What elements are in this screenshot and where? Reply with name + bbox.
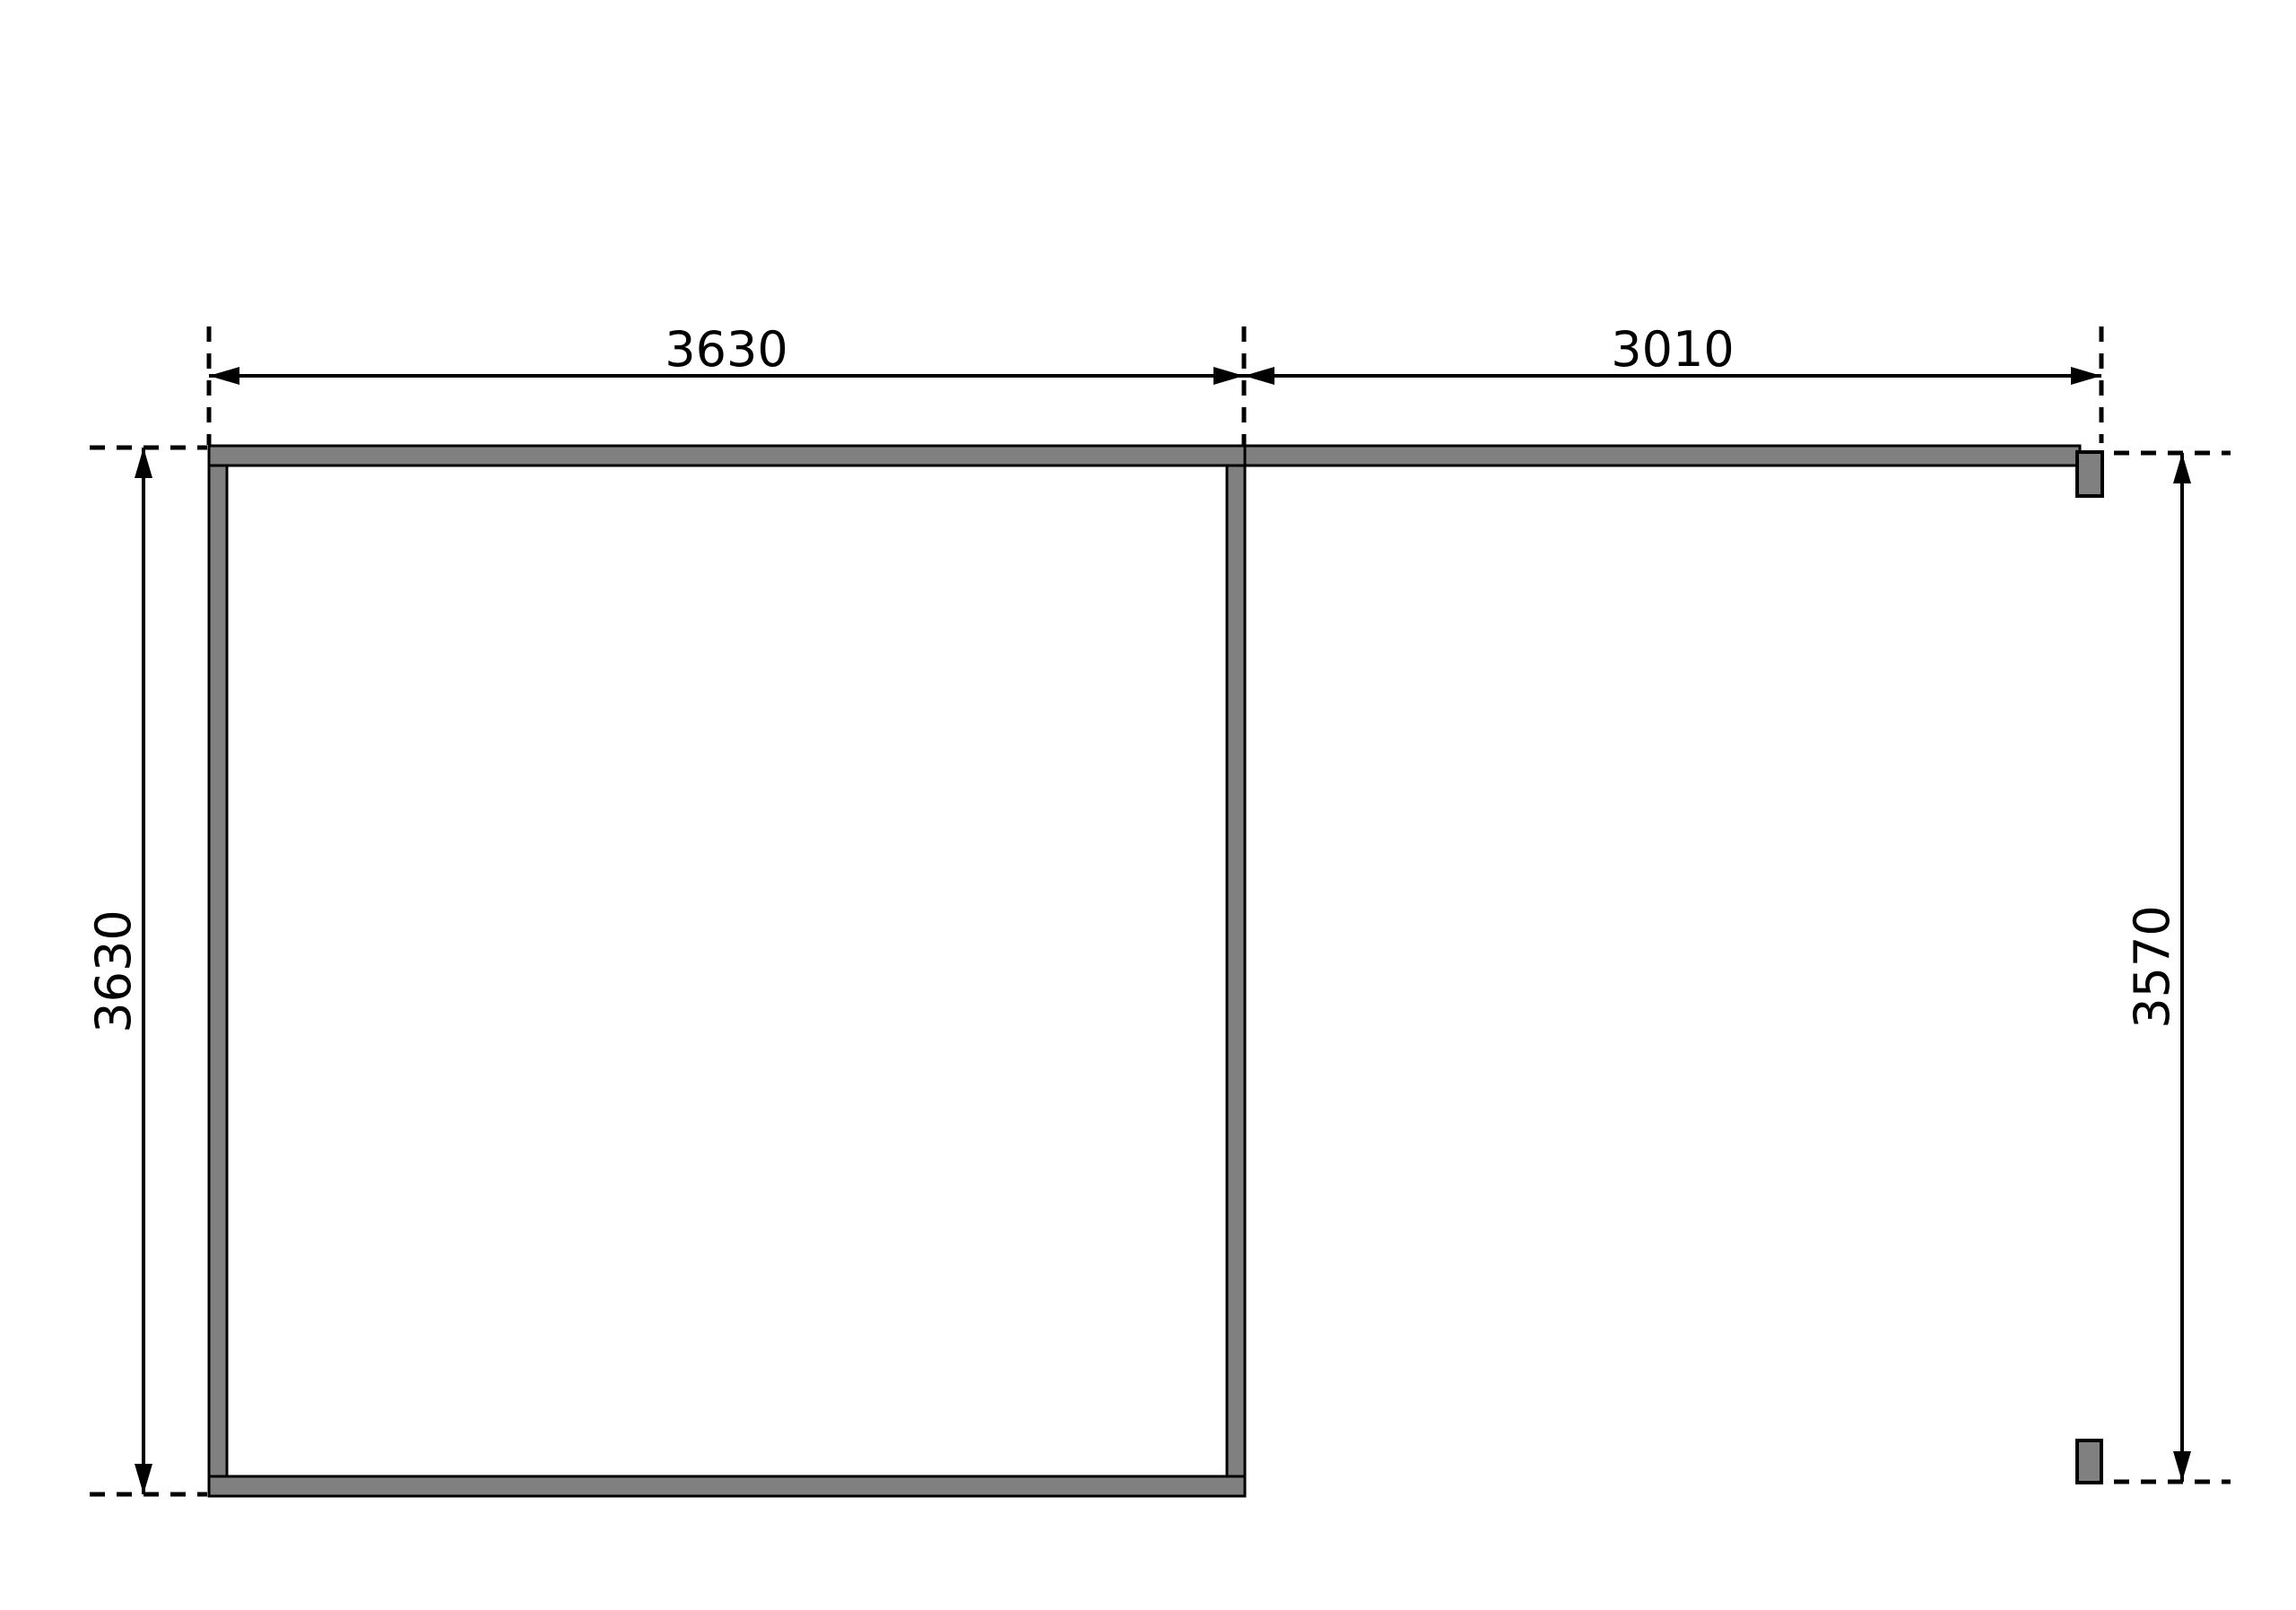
dimension-top-right-width: 3010 xyxy=(1244,321,2101,385)
dimension-top-left-width: 3630 xyxy=(209,321,1244,385)
extension-structure xyxy=(1245,446,2102,1483)
arrowhead-up-icon xyxy=(2173,453,2191,483)
room-right-wall xyxy=(1227,466,1245,1476)
arrowhead-right-icon xyxy=(2071,367,2101,385)
dimension-label-top-right: 3010 xyxy=(1611,321,1734,378)
arrowhead-right-icon xyxy=(1213,367,1244,385)
floor-plan-drawing: 3630 3010 3630 3570 xyxy=(0,0,2296,1610)
room-top-wall xyxy=(209,446,1245,466)
extension-front-right-post xyxy=(2077,452,2102,496)
dimension-label-top-left: 3630 xyxy=(665,321,787,378)
witness-lines xyxy=(90,326,2231,1494)
extension-rear-right-post xyxy=(2077,1440,2101,1483)
arrowhead-left-icon xyxy=(209,367,239,385)
room-bottom-wall xyxy=(209,1476,1245,1496)
dimension-right-height: 3570 xyxy=(2124,453,2191,1482)
arrowhead-up-icon xyxy=(135,448,152,478)
room-left-wall xyxy=(209,466,227,1476)
dimension-label-left: 3630 xyxy=(85,909,142,1032)
floor-plan-canvas: 3630 3010 3630 3570 xyxy=(0,0,2296,1610)
extension-top-wall xyxy=(1245,446,2080,466)
arrowhead-left-icon xyxy=(1244,367,1274,385)
arrowhead-down-icon xyxy=(135,1464,152,1494)
arrowhead-down-icon xyxy=(2173,1451,2191,1482)
dimension-left-height: 3630 xyxy=(85,448,152,1494)
room-walls xyxy=(209,446,1245,1496)
dimension-label-right: 3570 xyxy=(2124,905,2180,1028)
